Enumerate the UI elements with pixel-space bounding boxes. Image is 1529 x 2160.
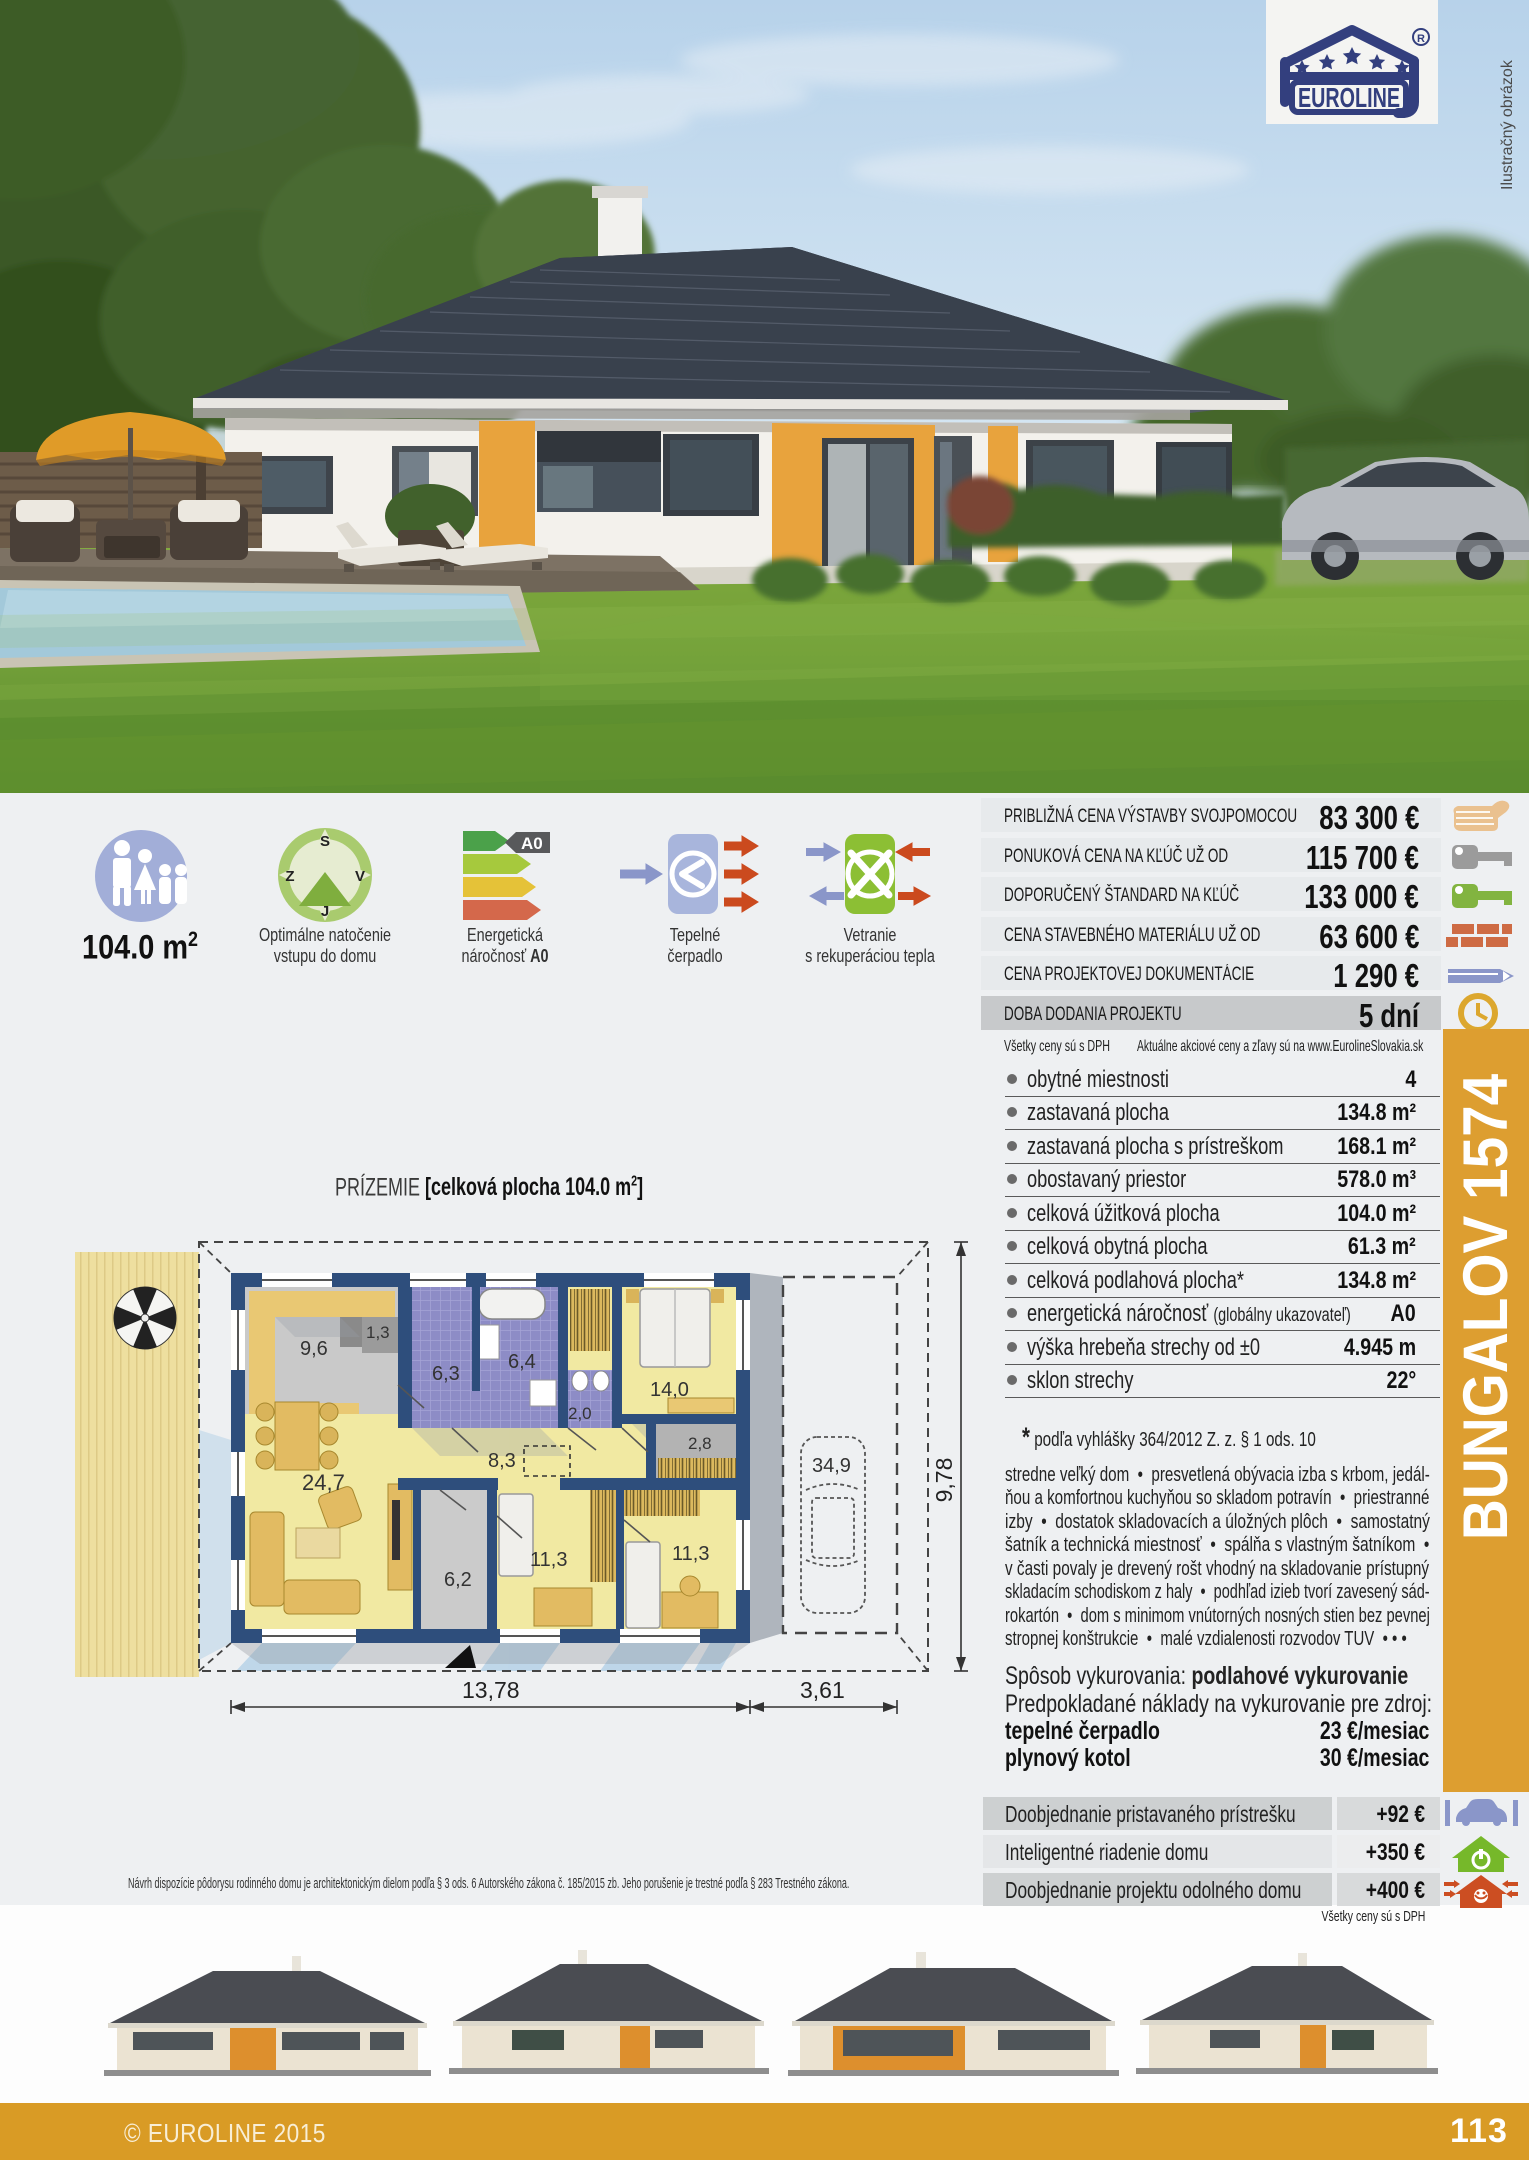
svg-text:3,61: 3,61 [800, 1677, 845, 1703]
svg-text:A0: A0 [521, 834, 543, 853]
svg-text:V: V [355, 868, 365, 885]
svg-text:9,6: 9,6 [300, 1338, 328, 1360]
svg-text:1,3: 1,3 [366, 1323, 390, 1342]
svg-text:6,4: 6,4 [508, 1351, 536, 1373]
svg-text:R: R [1417, 33, 1425, 45]
svg-text:EUROLINE: EUROLINE [1298, 82, 1400, 113]
svg-text:Z: Z [285, 868, 294, 885]
svg-text:J: J [321, 903, 329, 920]
svg-text:11,3: 11,3 [672, 1543, 709, 1565]
svg-text:2,8: 2,8 [688, 1434, 712, 1453]
svg-text:13,78: 13,78 [462, 1677, 520, 1703]
svg-text:34,9: 34,9 [812, 1455, 851, 1477]
svg-text:9,78: 9,78 [931, 1458, 957, 1503]
svg-text:6,3: 6,3 [432, 1363, 460, 1385]
svg-text:6,2: 6,2 [444, 1569, 472, 1591]
svg-text:14,0: 14,0 [650, 1379, 689, 1401]
svg-text:S: S [320, 833, 330, 850]
svg-text:11,3: 11,3 [530, 1549, 567, 1571]
svg-text:2,0: 2,0 [568, 1404, 592, 1423]
svg-text:8,3: 8,3 [488, 1450, 516, 1472]
svg-text:Ilustračný obrázok: Ilustračný obrázok [1499, 59, 1516, 190]
svg-text:24,7: 24,7 [302, 1470, 345, 1495]
